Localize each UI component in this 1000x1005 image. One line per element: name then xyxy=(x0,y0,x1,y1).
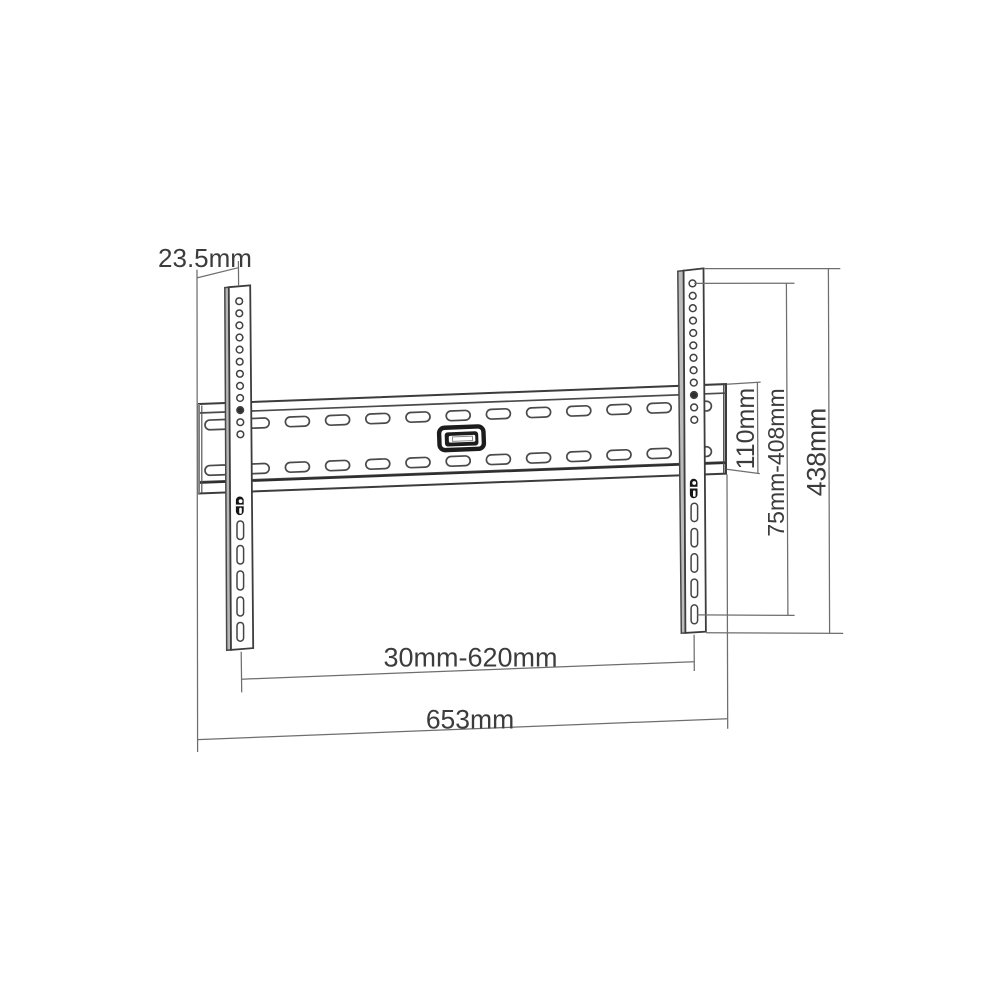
svg-text:438mm: 438mm xyxy=(801,408,831,496)
svg-text:653mm: 653mm xyxy=(426,705,514,735)
svg-text:23.5mm: 23.5mm xyxy=(158,243,252,273)
svg-text:110mm: 110mm xyxy=(732,388,760,470)
svg-text:75mm-408mm: 75mm-408mm xyxy=(763,388,789,536)
svg-text:30mm-620mm: 30mm-620mm xyxy=(383,643,557,673)
